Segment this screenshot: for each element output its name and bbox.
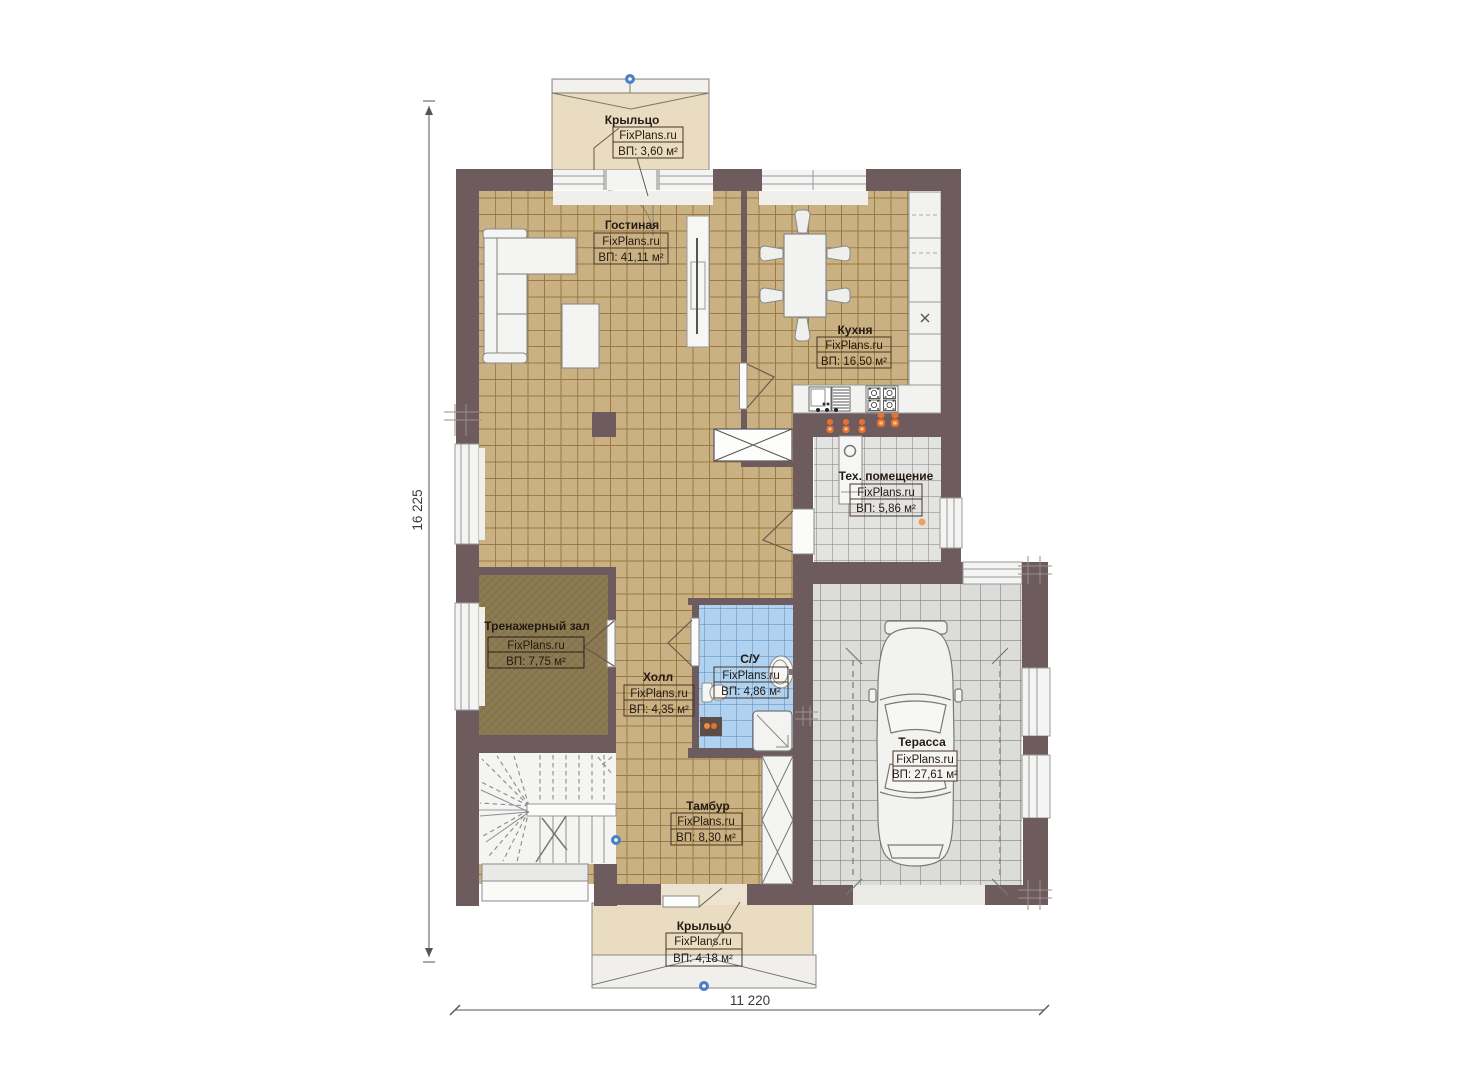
- svg-text:ВП: 5,86 м²: ВП: 5,86 м²: [856, 503, 916, 515]
- svg-text:ВП: 7,75 м²: ВП: 7,75 м²: [506, 656, 566, 668]
- svg-text:FixPlans.ru: FixPlans.ru: [507, 640, 565, 652]
- svg-text:Терасса: Терасса: [898, 735, 946, 749]
- svg-text:FixPlans.ru: FixPlans.ru: [896, 754, 954, 766]
- svg-text:ВП: 4,86 м²: ВП: 4,86 м²: [721, 686, 781, 698]
- svg-text:Гостиная: Гостиная: [605, 218, 659, 232]
- svg-text:Крыльцо: Крыльцо: [677, 919, 732, 933]
- svg-text:Кухня: Кухня: [837, 323, 872, 337]
- svg-text:FixPlans.ru: FixPlans.ru: [677, 816, 735, 828]
- svg-text:FixPlans.ru: FixPlans.ru: [825, 340, 883, 352]
- svg-text:ВП: 4,18 м²: ВП: 4,18 м²: [673, 953, 733, 965]
- svg-text:FixPlans.ru: FixPlans.ru: [857, 487, 915, 499]
- svg-text:FixPlans.ru: FixPlans.ru: [619, 130, 677, 142]
- svg-text:FixPlans.ru: FixPlans.ru: [674, 936, 732, 948]
- svg-text:Холл: Холл: [643, 670, 673, 684]
- svg-text:11 220: 11 220: [730, 993, 770, 1008]
- svg-text:ВП: 16,50 м²: ВП: 16,50 м²: [821, 356, 887, 368]
- svg-text:16 225: 16 225: [410, 489, 425, 530]
- svg-text:ВП: 3,60 м²: ВП: 3,60 м²: [618, 146, 678, 158]
- svg-text:ВП: 4,35 м²: ВП: 4,35 м²: [629, 704, 689, 716]
- svg-text:FixPlans.ru: FixPlans.ru: [602, 236, 660, 248]
- svg-text:Тех. помещение: Тех. помещение: [839, 469, 934, 483]
- svg-text:Тренажерный зал: Тренажерный зал: [484, 619, 589, 633]
- svg-text:ВП: 41,11 м²: ВП: 41,11 м²: [598, 252, 663, 264]
- svg-text:Крыльцо: Крыльцо: [605, 113, 660, 127]
- svg-text:Тамбур: Тамбур: [686, 799, 730, 813]
- svg-text:ВП: 8,30 м²: ВП: 8,30 м²: [676, 832, 736, 844]
- svg-text:FixPlans.ru: FixPlans.ru: [630, 688, 688, 700]
- svg-text:FixPlans.ru: FixPlans.ru: [722, 670, 780, 682]
- svg-text:ВП: 27,61 м²: ВП: 27,61 м²: [892, 769, 958, 781]
- svg-text:С/У: С/У: [740, 652, 760, 666]
